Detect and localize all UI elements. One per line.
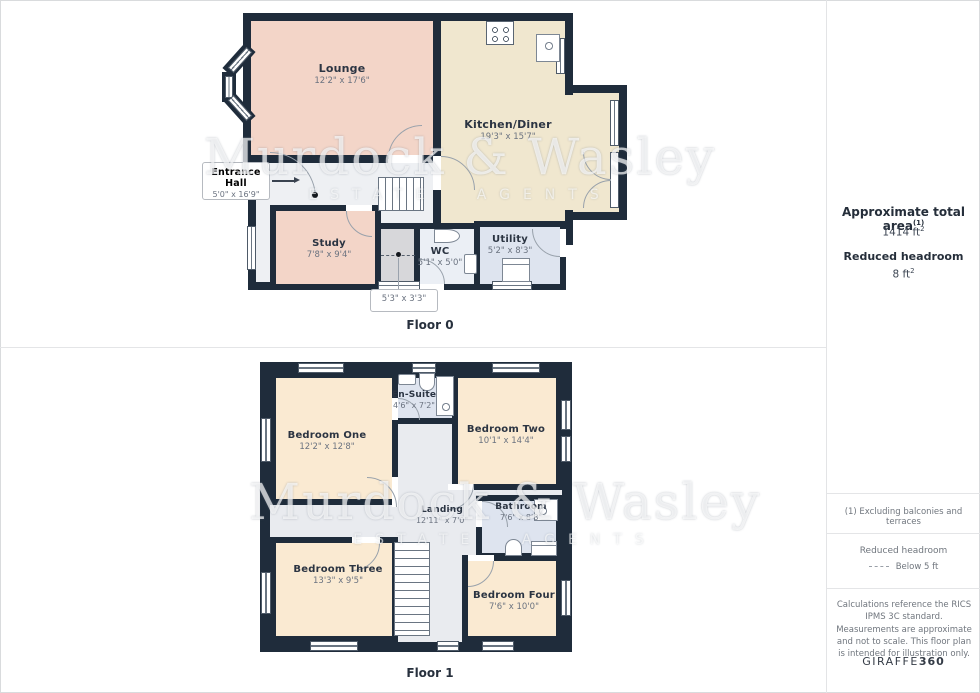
wc-label: WC 5'1" x 5'0" <box>418 246 463 268</box>
ensuite-top-window <box>412 363 436 373</box>
headroom-heading: Reduced headroom <box>827 250 980 263</box>
total-area-value: 1414 ft2 <box>827 225 980 239</box>
headroom-value: 8 ft2 <box>827 267 980 281</box>
bedroom-one-top-window <box>298 363 344 373</box>
bathroom-toilet-icon <box>505 539 522 556</box>
plan-divider <box>0 347 826 348</box>
ensuite-toilet-icon <box>419 373 435 391</box>
kitchen-ext-window <box>610 100 619 146</box>
lounge-label: Lounge 12'2" x 17'6" <box>314 62 369 86</box>
entrance-arrowhead <box>294 177 300 183</box>
bedroom-two-right-window-1 <box>561 400 571 430</box>
stairs-floor0 <box>378 177 424 211</box>
sidebar-divider-2 <box>827 533 980 534</box>
ensuite-sink-icon <box>398 374 416 385</box>
bedroom-four-right-window <box>561 580 571 616</box>
stairs-floor1 <box>394 542 430 636</box>
bathroom-sink-icon <box>531 541 557 556</box>
bedroom-two-right-window-2 <box>561 436 571 462</box>
bedroom-three-label: Bedroom Three 13'3" x 9'5" <box>293 564 382 586</box>
legend-row: Below 5 ft <box>827 562 980 572</box>
stove-icon <box>486 21 514 45</box>
wc-toilet-icon <box>434 229 460 243</box>
legend-value: Below 5 ft <box>896 562 939 572</box>
bedroom-four-label: Bedroom Four 7'6" x 10'0" <box>473 590 555 612</box>
kitchen-sink-icon <box>536 34 560 62</box>
bedroom-four-bottom-window <box>482 641 514 651</box>
giraffe360-logo: GIRAFFE360 <box>827 655 980 668</box>
info-sidebar: Approximate total area(1) 1414 ft2 Reduc… <box>826 0 980 693</box>
disclaimer-text: Calculations reference the RICS IPMS 3C … <box>836 599 972 661</box>
landing-label: Landing 12'11" x 7'0" <box>416 505 468 525</box>
hall-window <box>247 226 256 270</box>
front-door-hinge-dot <box>312 192 318 198</box>
sidebar-divider-3 <box>827 588 980 589</box>
utility-label: Utility 5'2" x 8'3" <box>488 234 533 256</box>
floor0-label: Floor 0 <box>406 318 453 332</box>
cupboard-leader-line <box>398 258 399 289</box>
bedroom-four-door-gap <box>468 555 494 561</box>
cupboard-dot <box>396 252 401 257</box>
washer-icon <box>502 258 530 282</box>
bedroom-one-left-window <box>261 418 271 462</box>
sidebar-divider-1 <box>827 493 980 494</box>
bedroom-three-room <box>270 537 398 642</box>
bedroom-three-bottom-window <box>310 641 358 651</box>
ensuite-shower-icon <box>436 376 454 416</box>
wc-sink-icon <box>464 254 477 274</box>
utility-window <box>492 281 532 290</box>
entrance-hall-dims: 5'0" x 16'9" <box>203 190 269 199</box>
utility-door-gap <box>560 229 566 257</box>
bedroom-two-label: Bedroom Two 10'1" x 14'4" <box>467 424 545 446</box>
kitchen-label: Kitchen/Diner 19'3" x 15'7" <box>464 118 551 142</box>
bedroom-one-label: Bedroom One 12'2" x 12'8" <box>288 430 367 452</box>
area-footnote: (1) Excluding balconies and terraces <box>827 507 980 527</box>
bedroom-three-door-gap <box>352 537 380 543</box>
entrance-hall-label-box: Entrance Hall 5'0" x 16'9" <box>202 162 270 200</box>
kitchen-door-gap <box>433 156 441 190</box>
bedroom-three-left-window <box>261 572 271 614</box>
floor1-label: Floor 1 <box>406 666 453 680</box>
floorplan-page: Entrance Hall 5'0" x 16'9" 5'3" x 3'3" L… <box>0 0 980 693</box>
entrance-hall-name: Entrance Hall <box>203 167 269 189</box>
dashed-line-icon <box>869 566 889 567</box>
study-label: Study 7'8" x 9'4" <box>307 238 352 260</box>
study-door-gap <box>346 205 372 211</box>
cupboard-dims: 5'3" x 3'3" <box>382 294 427 304</box>
bedroom-two-top-window <box>492 363 540 373</box>
kitchen-opening-patch <box>561 95 581 210</box>
landing-bottom-window <box>437 641 459 651</box>
french-door-gap <box>610 152 619 208</box>
bathroom-label: Bathroom 7'6" x 8'8" <box>495 502 546 522</box>
entrance-arrow-line <box>272 180 294 182</box>
cupboard-callout: 5'3" x 3'3" <box>370 289 438 312</box>
legend-title: Reduced headroom <box>827 546 980 556</box>
ensuite-label: En-Suite 4'6" x 7'2" <box>392 390 436 410</box>
bathroom-door-gap <box>476 501 482 527</box>
